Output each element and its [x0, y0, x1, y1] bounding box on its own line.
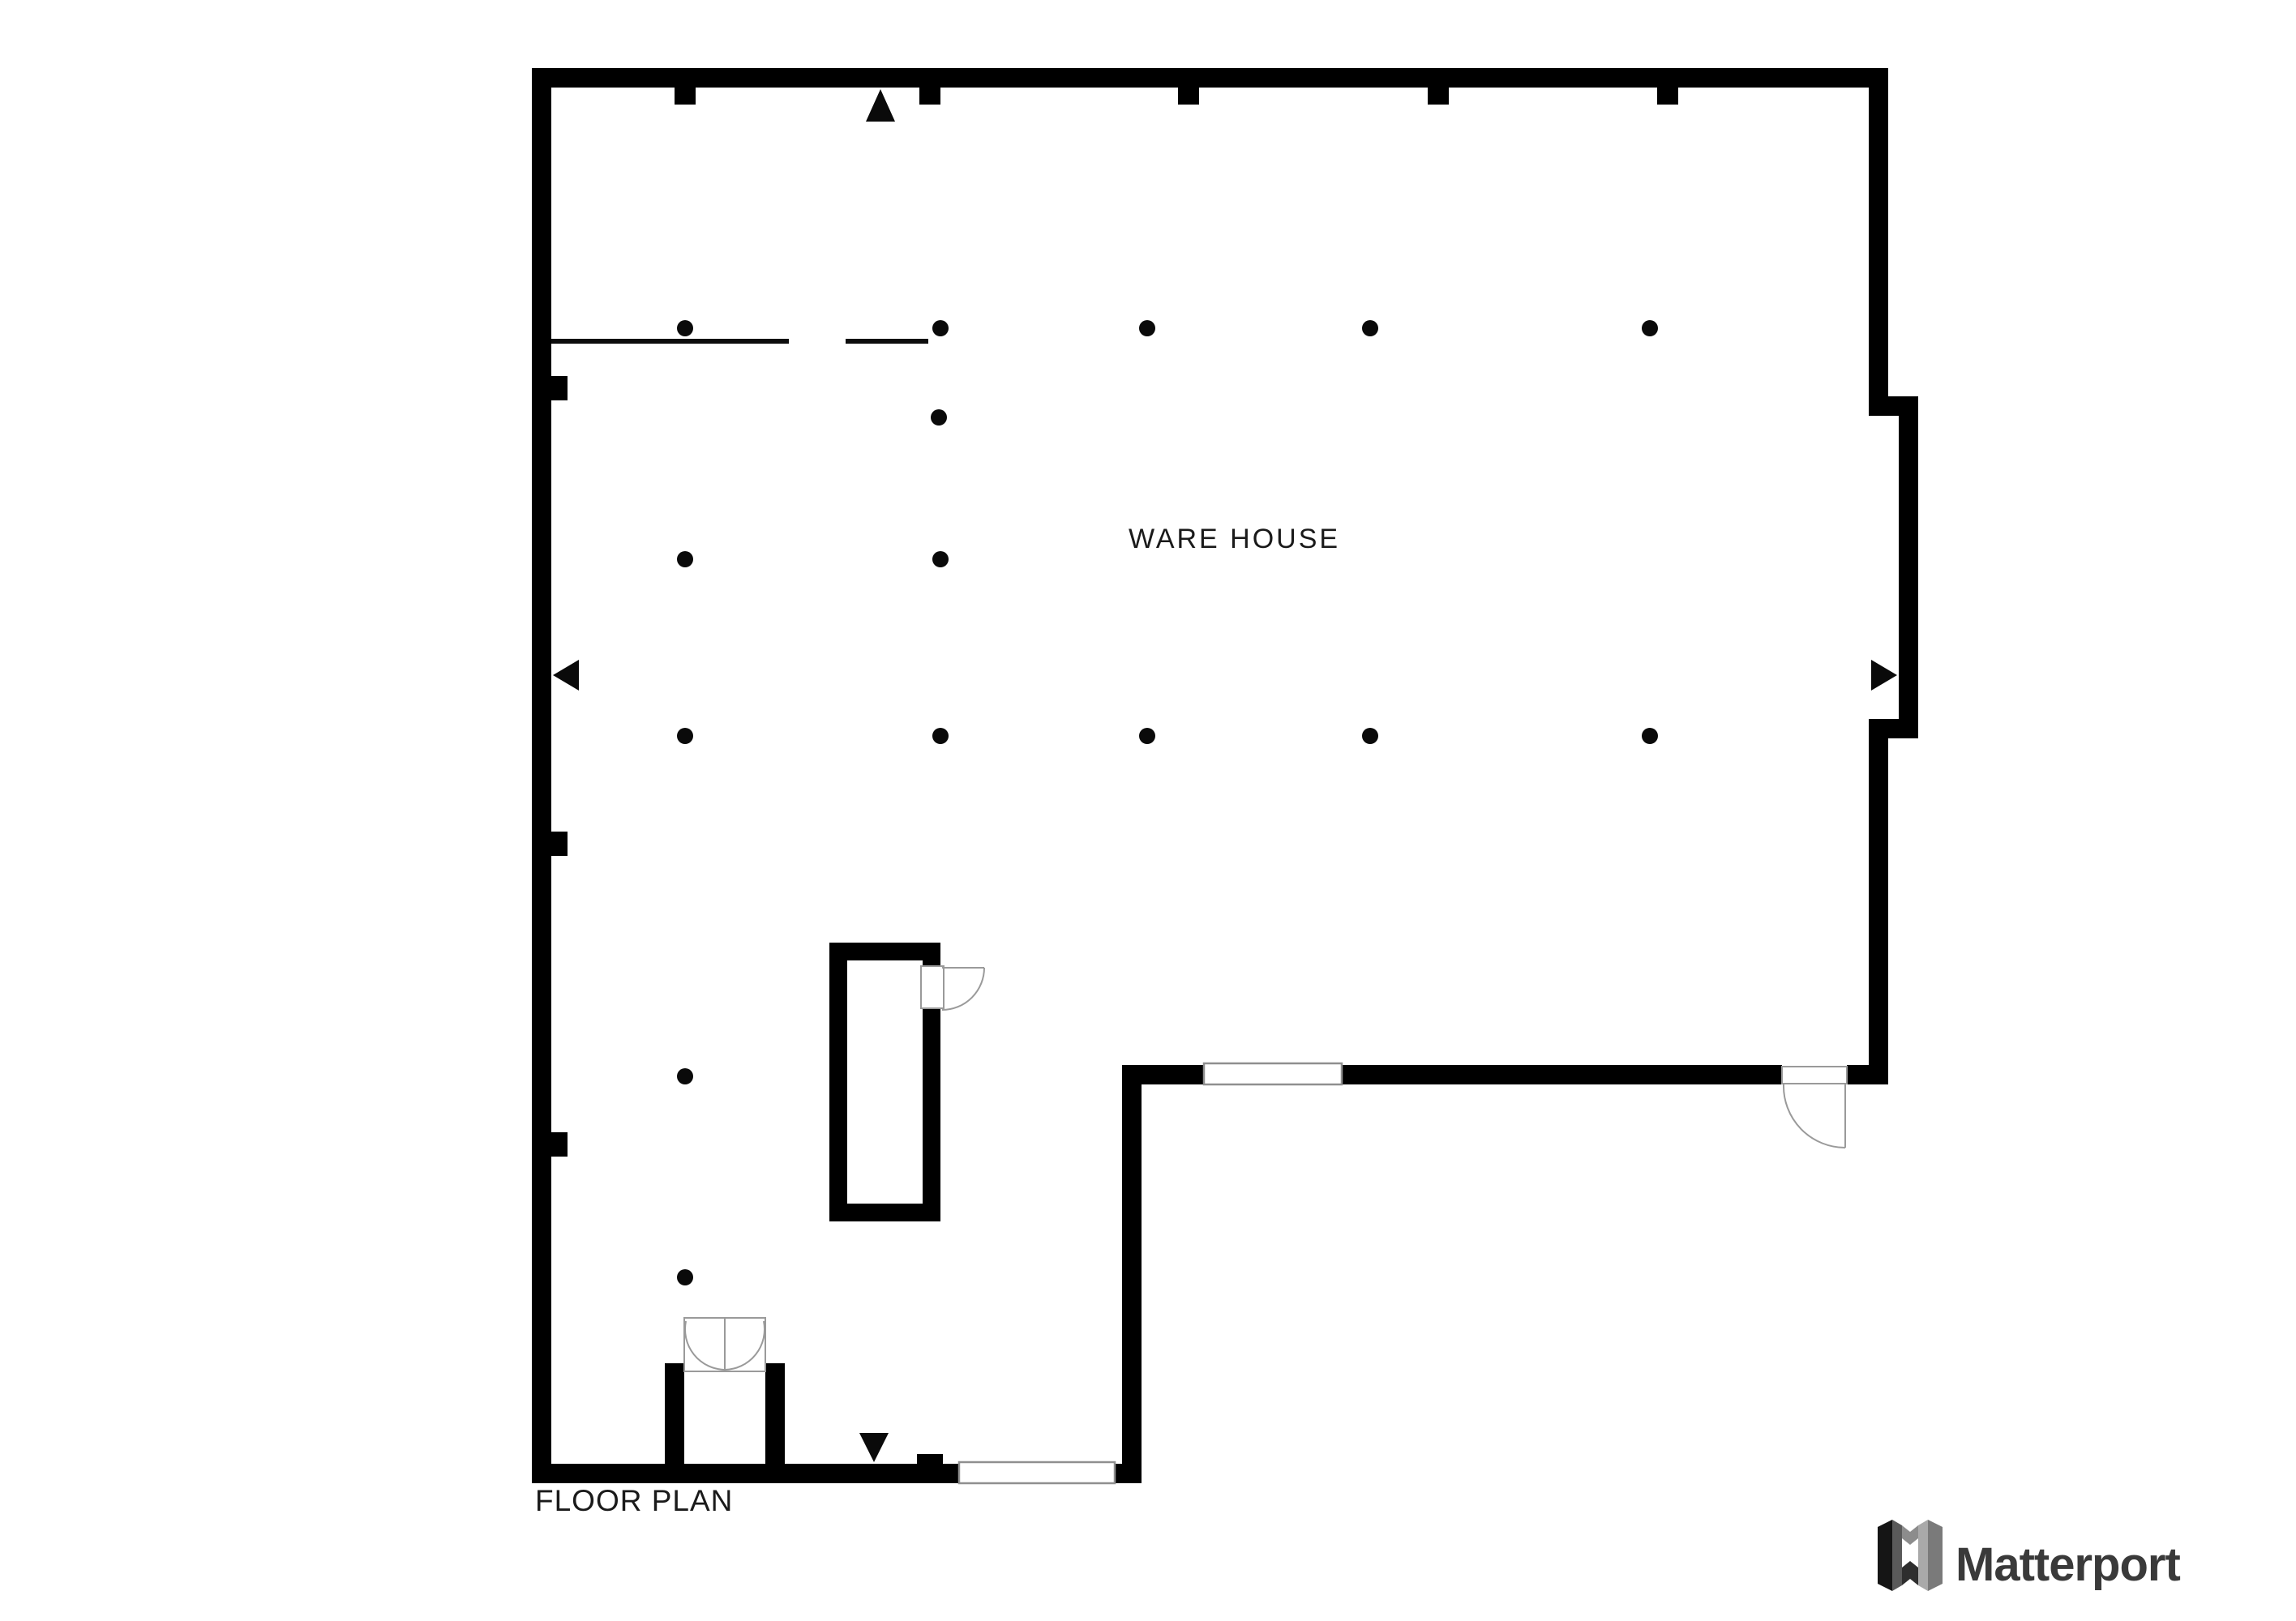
wall-right-lower: [1869, 719, 1888, 1084]
column-dot: [1362, 728, 1378, 744]
section-marker-left-icon: [553, 660, 579, 691]
column-dot: [932, 728, 949, 744]
wall-bottom-seg2: [1115, 1464, 1142, 1483]
mid-wall-door-arc: [1784, 1084, 1845, 1148]
column-dot: [1362, 320, 1378, 336]
mid-wall-door-gap: [1782, 1067, 1847, 1084]
column-dot: [932, 551, 949, 567]
wall-interior-vertical: [1122, 1065, 1142, 1483]
closet-door-arc: [942, 968, 984, 1010]
wall-stub-top: [675, 88, 696, 105]
windows: [959, 1063, 1342, 1483]
column-dot: [1642, 320, 1658, 336]
wall-mid-seg3: [1847, 1065, 1888, 1084]
matterport-m-icon: [1878, 1520, 1943, 1591]
section-marker-up-icon: [866, 89, 895, 122]
floor-plan-page: WARE HOUSE FLOOR PLAN Matterport: [0, 0, 2296, 1621]
column-dot: [931, 409, 947, 426]
column-dot: [677, 728, 693, 744]
wall-mid-seg2: [1342, 1065, 1782, 1084]
wall-bottom-seg1: [532, 1464, 959, 1483]
wall-stub-top: [1428, 88, 1449, 105]
wall-left: [532, 68, 551, 1483]
window-bottom-wall: [959, 1462, 1115, 1483]
plan-title: FLOOR PLAN: [535, 1484, 733, 1517]
floor-plan-drawing: WARE HOUSE FLOOR PLAN Matterport: [0, 0, 2296, 1621]
window-mid-wall: [1204, 1063, 1342, 1084]
brand-text: Matterport: [1955, 1538, 2180, 1591]
wall-stub-left: [551, 376, 568, 400]
wall-notch-outer: [1899, 396, 1918, 738]
brand-logo: Matterport: [1878, 1520, 2180, 1591]
entry-room: [665, 1318, 785, 1464]
wall-stub-left: [551, 1132, 568, 1157]
column-dot: [932, 320, 949, 336]
section-marker-down-icon: [859, 1433, 889, 1462]
mid-wall-door: [1782, 1067, 1847, 1148]
column-dot: [1139, 320, 1155, 336]
closet-door-gap: [921, 966, 944, 1008]
column-dot: [677, 320, 693, 336]
column-dot: [1139, 728, 1155, 744]
room-label: WARE HOUSE: [1129, 524, 1340, 554]
wall-stub-top: [1178, 88, 1199, 105]
column-dot: [677, 1068, 693, 1084]
section-marker-right-icon: [1871, 660, 1897, 691]
wall-stubs-layer: [551, 88, 1678, 1464]
column-dot: [677, 1269, 693, 1285]
wall-top: [532, 68, 1888, 88]
column-dots-layer: [677, 320, 1658, 1285]
entry-room-wall-left: [665, 1363, 684, 1464]
wall-stub-left: [551, 832, 568, 856]
closet-room: [829, 943, 984, 1221]
wall-right-upper: [1869, 68, 1888, 416]
wall-stub-top: [919, 88, 940, 105]
warehouse-walls: [532, 68, 1918, 1483]
column-dot: [1642, 728, 1658, 744]
section-markers: [553, 89, 1897, 1462]
wall-stub-top: [1657, 88, 1678, 105]
wall-stub-bottom: [917, 1454, 943, 1464]
entry-room-wall-right: [765, 1363, 785, 1464]
closet-inner: [847, 960, 923, 1204]
column-dot: [677, 551, 693, 567]
